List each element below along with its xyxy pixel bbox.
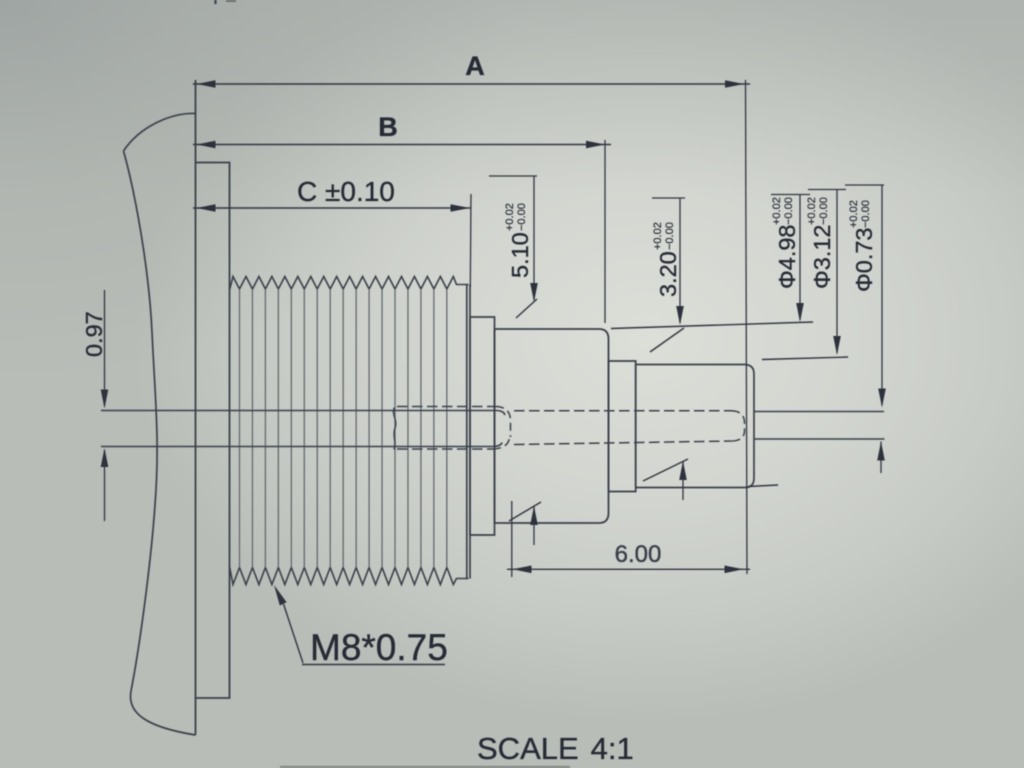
svg-text:B: B: [378, 112, 398, 142]
svg-text:0.97: 0.97: [81, 311, 107, 357]
svg-text:+0.02: +0.02: [848, 200, 860, 228]
svg-text:−0.00: −0.00: [818, 197, 830, 225]
svg-text:Φ4.98: Φ4.98: [774, 225, 800, 290]
svg-text:SCALE4:1: SCALE4:1: [477, 731, 634, 766]
svg-text:3.20: 3.20: [655, 251, 681, 297]
svg-text:5.10: 5.10: [507, 232, 533, 278]
svg-text:Φ0.73: Φ0.73: [851, 228, 877, 293]
svg-text:−0.00: −0.00: [860, 200, 872, 228]
svg-text:+0.02: +0.02: [806, 197, 818, 225]
svg-text:C ±0.10: C ±0.10: [297, 176, 395, 207]
svg-text:6.00: 6.00: [615, 541, 662, 568]
svg-text:+0.02: +0.02: [504, 203, 516, 231]
svg-text:−0.00: −0.00: [664, 222, 676, 250]
svg-text:−0.00: −0.00: [783, 197, 795, 225]
svg-text:Φ3.12: Φ3.12: [809, 225, 835, 290]
svg-text:+0.02: +0.02: [771, 197, 783, 225]
svg-text:A: A: [465, 51, 485, 81]
svg-text:+0.02: +0.02: [652, 222, 664, 250]
svg-text:M8*0.75: M8*0.75: [310, 627, 448, 668]
svg-text:−0.00: −0.00: [516, 203, 528, 231]
